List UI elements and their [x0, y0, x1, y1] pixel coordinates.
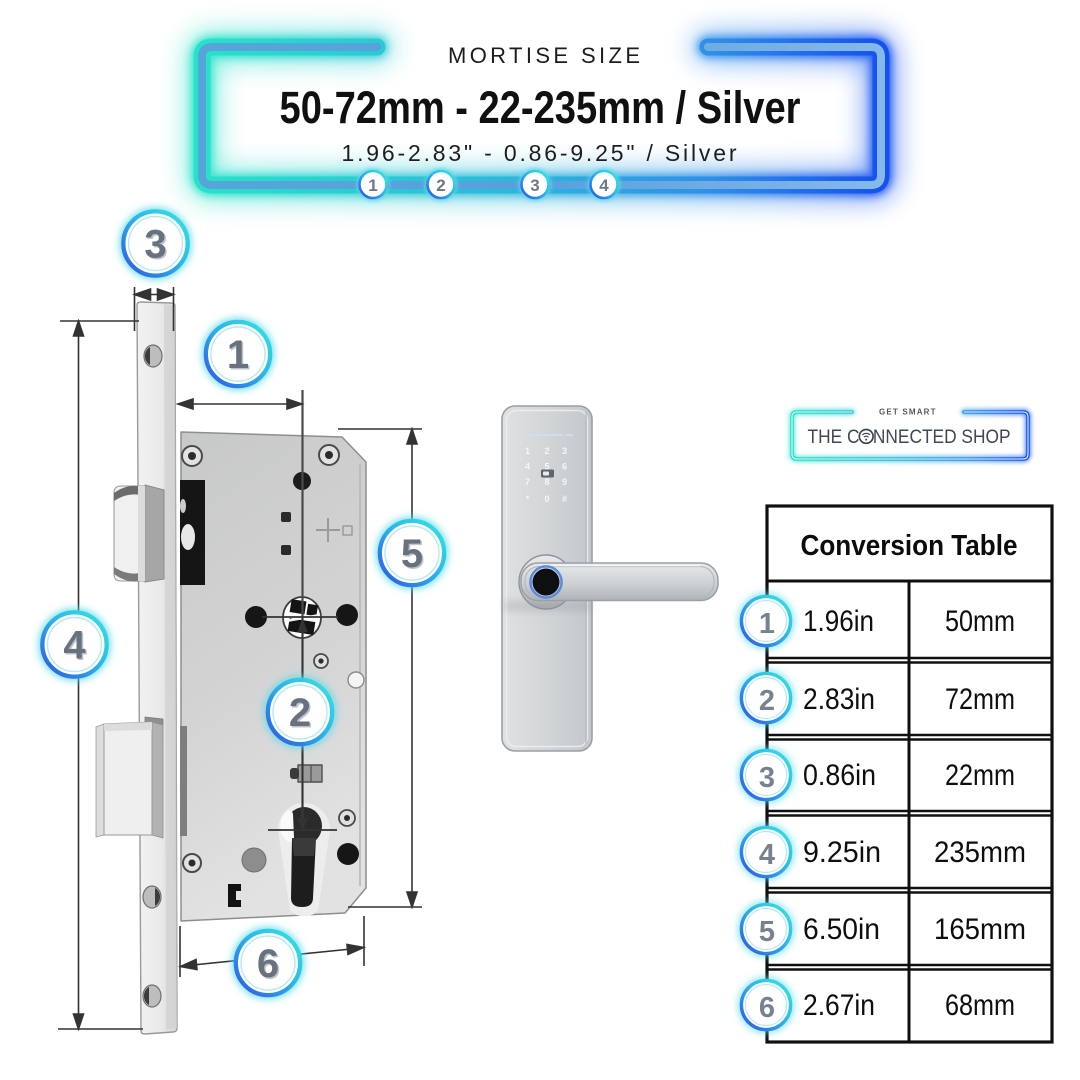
- svg-text:1: 1: [227, 333, 249, 377]
- svg-text:9: 9: [562, 477, 567, 487]
- svg-text:2: 2: [289, 691, 311, 735]
- svg-text:6: 6: [562, 462, 567, 472]
- svg-text:8: 8: [544, 477, 549, 487]
- svg-text:5: 5: [401, 532, 423, 576]
- svg-text:4: 4: [63, 624, 86, 668]
- svg-text:72mm: 72mm: [945, 683, 1015, 716]
- svg-text:2: 2: [544, 446, 549, 456]
- svg-text:1.96-2.83" - 0.86-9.25" / Silv: 1.96-2.83" - 0.86-9.25" / Silver: [342, 140, 737, 166]
- svg-text:4: 4: [525, 462, 530, 472]
- svg-text:2.83in: 2.83in: [803, 683, 875, 716]
- svg-text:9.25in: 9.25in: [803, 836, 881, 869]
- svg-text:3: 3: [759, 762, 775, 794]
- svg-text:4: 4: [599, 176, 609, 195]
- svg-text:6: 6: [759, 992, 775, 1024]
- svg-text:3: 3: [530, 176, 539, 195]
- svg-text:6: 6: [257, 942, 279, 986]
- svg-text:4: 4: [759, 839, 775, 871]
- svg-text:50-72mm - 22-235mm / Silver: 50-72mm - 22-235mm / Silver: [280, 82, 801, 133]
- svg-text:2: 2: [436, 176, 445, 195]
- svg-text:7: 7: [525, 477, 530, 487]
- svg-text:0.86in: 0.86in: [803, 759, 876, 792]
- svg-text:THE CONNECTED SHOP: THE CONNECTED SHOP: [808, 427, 1011, 448]
- svg-text:#: #: [562, 494, 567, 504]
- svg-text:1.96in: 1.96in: [803, 605, 874, 638]
- svg-text:2: 2: [759, 685, 775, 717]
- svg-text:1: 1: [759, 608, 775, 640]
- svg-text:6.50in: 6.50in: [803, 913, 880, 946]
- svg-text:3: 3: [144, 223, 166, 267]
- svg-text:22mm: 22mm: [945, 759, 1015, 792]
- svg-text:5: 5: [759, 916, 775, 948]
- svg-text:MORTISE SIZE: MORTISE SIZE: [448, 43, 640, 68]
- svg-text:3: 3: [562, 446, 567, 456]
- svg-text:68mm: 68mm: [945, 989, 1015, 1022]
- svg-text:165mm: 165mm: [934, 913, 1026, 946]
- svg-text:Conversion Table: Conversion Table: [801, 530, 1018, 562]
- svg-text:50mm: 50mm: [945, 605, 1015, 638]
- svg-text:1: 1: [368, 176, 377, 195]
- svg-text:235mm: 235mm: [934, 836, 1026, 869]
- svg-text:2.67in: 2.67in: [803, 989, 875, 1022]
- svg-text:*: *: [526, 494, 530, 504]
- svg-text:1: 1: [525, 446, 530, 456]
- svg-text:GET SMART: GET SMART: [879, 408, 937, 417]
- svg-text:0: 0: [544, 494, 549, 504]
